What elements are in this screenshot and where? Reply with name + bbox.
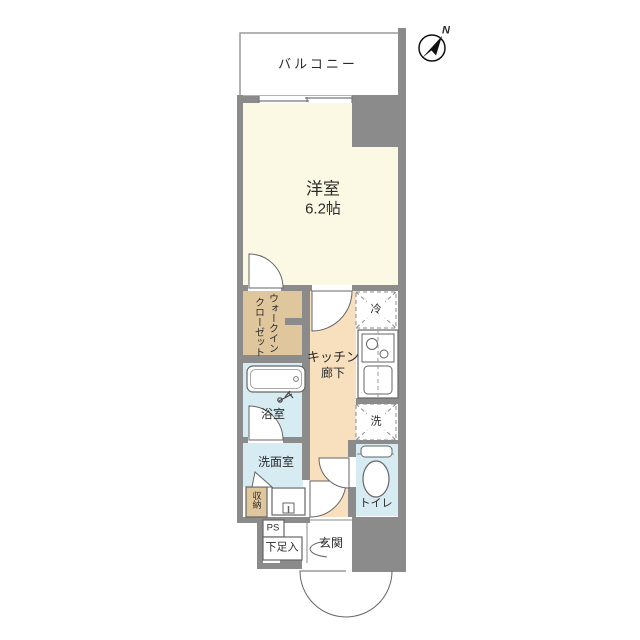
kitchen-counter-icon [358,330,398,398]
main-room-label: 洋室 [306,181,340,198]
shoe-label: 下足入 [266,543,299,554]
balcony-window-icon [259,96,352,103]
wall-bath-bottom-a [243,437,248,443]
wall-counter-washer [356,398,398,404]
wall-balcony-right [398,28,406,96]
wall-balcony-bottom-left [237,96,260,103]
refrigerator-label: 冷 [371,305,382,316]
balcony-label: バルコニー [278,58,358,71]
compass-north-label: N [442,26,450,37]
washroom-label: 洗面室 [258,456,294,468]
wic-label-line2: クローゼット [251,297,266,357]
kitchen-label: キッチン [307,351,359,364]
floorplan: バルコニー N 洋室 6.2帖 ウォークイン クローゼット キッチン 廊下 冷 … [0,0,640,640]
compass-icon [419,35,445,61]
wall-room-bottom-a [243,285,248,291]
washbasin-icon [272,488,305,515]
main-room-size: 6.2帖 [305,202,341,217]
wall-room-bottom-c [352,285,398,291]
bathtub-icon [247,366,305,392]
bath-label: 浴室 [261,408,285,420]
wic-label-line1: ウォークイン [265,293,280,353]
ps-label: PS [267,523,280,533]
entrance-door-swing [300,571,392,617]
toilet-label: トイレ [360,499,393,510]
wall-left-step [257,523,263,563]
wall-washer-toilet [352,440,398,444]
wall-right [398,96,406,572]
wall-bottom-right-mass [352,517,406,572]
storage-label: 収納 [251,491,264,509]
washer-label: 洗 [371,417,382,428]
entrance-label: 玄関 [319,537,343,549]
wall-bath-bottom-b [283,437,307,443]
kitchen-sublabel: 廊下 [321,367,345,379]
wall-left [237,95,243,523]
wall-toilet-left-lower [348,487,356,517]
wall-wic-stub [285,318,302,325]
wall-notch [352,95,406,147]
